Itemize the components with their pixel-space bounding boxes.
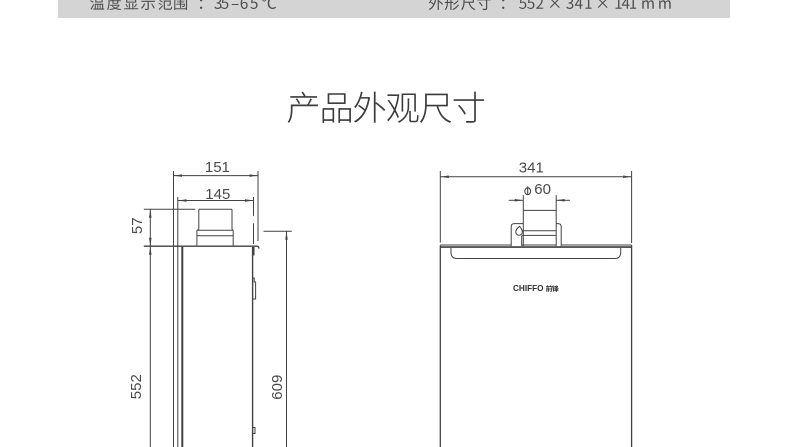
svg-text:552: 552 — [128, 374, 145, 399]
svg-text:609: 609 — [269, 375, 286, 400]
svg-text:60: 60 — [534, 181, 551, 198]
svg-text:CHIFFO: CHIFFO — [513, 284, 544, 293]
svg-text:57: 57 — [129, 217, 146, 234]
svg-text:341: 341 — [519, 160, 544, 177]
svg-text:151: 151 — [205, 159, 230, 176]
svg-text:145: 145 — [205, 186, 230, 203]
